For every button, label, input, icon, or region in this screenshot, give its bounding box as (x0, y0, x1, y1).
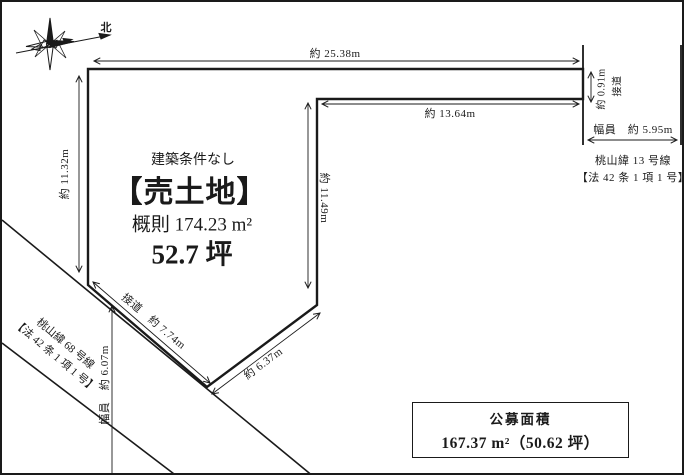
north-label: 北 (101, 19, 112, 35)
dim-label-middle-vertical: 約 11.49m (317, 173, 333, 224)
listing-area-tsubo: 52.7 坪 (152, 233, 233, 272)
dim-label-right-small: 約 0.91m (593, 68, 608, 109)
listing-title: 【売土地】 (113, 167, 268, 211)
registered-area-title: 公募面積 (413, 408, 628, 428)
frontage-label-right: 接道 (609, 76, 624, 97)
dim-label-top: 約 25.38m (309, 45, 360, 61)
road-width-label-right: 幅員 約 5.95m (593, 121, 673, 137)
dim-label-left: 約 11.32m (56, 149, 72, 200)
dim-label-upper-inner: 約 13.64m (424, 105, 475, 121)
registered-area-box: 公募面積 167.37 m²（50.62 坪） (412, 402, 629, 458)
land-plot-diagram: 北 約 25.38m 約 13.64m 約 11.32m 約 11.49m 約 … (0, 0, 684, 475)
registered-area-value: 167.37 m²（50.62 坪） (413, 431, 628, 453)
listing-condition: 建築条件なし (151, 149, 235, 169)
road-name-right: 桃山緯 13 号線 (595, 152, 671, 168)
compass-rose-icon (16, 18, 110, 70)
road-law-right: 【法 42 条 1 項 1 号】 (577, 169, 684, 185)
